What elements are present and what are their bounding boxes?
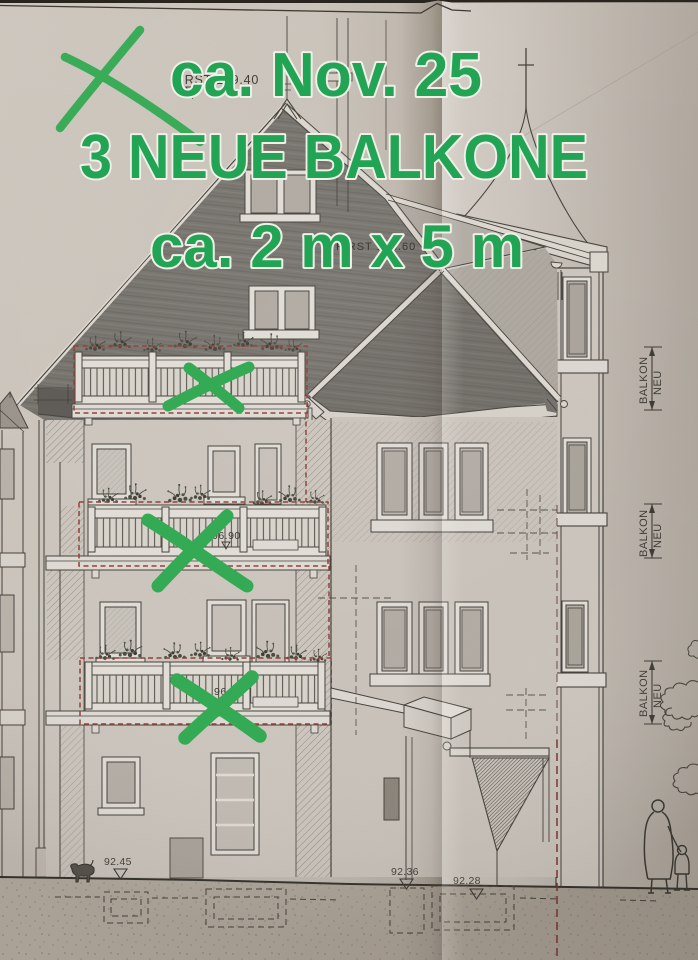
svg-text:3 NEUE BALKONE: 3 NEUE BALKONE [80, 123, 588, 192]
svg-text:ca. Nov. 25: ca. Nov. 25 [170, 41, 482, 110]
svg-text:ca. 2 m x 5 m: ca. 2 m x 5 m [150, 213, 524, 280]
